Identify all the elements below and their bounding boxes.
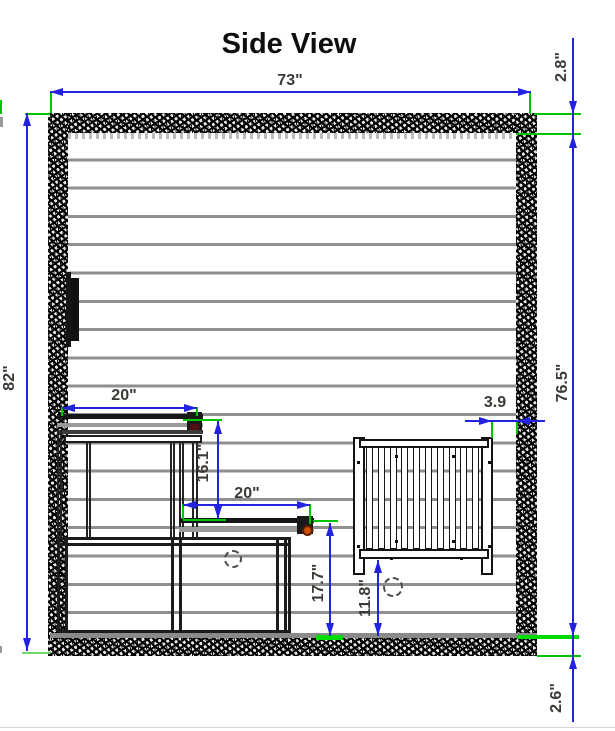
heater-slat xyxy=(366,447,373,549)
dimension-overall-height: 82" xyxy=(1,365,19,390)
dimension-interior-height: 76.5" xyxy=(554,364,572,403)
arrow-left-icon xyxy=(517,417,530,425)
heater-screw-dot xyxy=(390,557,393,560)
lower-bench-frame-post xyxy=(179,537,182,633)
dimension-upper-bench-depth: 20" xyxy=(111,387,136,405)
extension-line xyxy=(313,520,338,522)
upper-bench-leg xyxy=(86,442,91,537)
heater-slat xyxy=(401,447,408,549)
heater-screw-dot xyxy=(488,545,491,548)
heater-slat xyxy=(472,447,479,549)
page-divider xyxy=(0,727,615,728)
dimension-line xyxy=(62,407,197,409)
arrow-up-icon xyxy=(569,656,577,669)
heater-bottom-rail xyxy=(359,549,489,559)
arrow-right-icon xyxy=(184,404,197,412)
lower-bench-frame xyxy=(57,537,291,633)
arrow-left-icon xyxy=(50,88,63,96)
heater-screw-dot xyxy=(395,455,398,458)
lower-bench-top-underside xyxy=(179,527,314,532)
dimension-heater-floor-clearance: 11.8" xyxy=(357,579,375,617)
heater-screw-dot xyxy=(452,455,455,458)
arrow-left-icon xyxy=(183,501,196,509)
heater-slat xyxy=(413,447,420,549)
heater-slat xyxy=(390,447,397,549)
arrow-down-icon xyxy=(23,638,31,651)
cropped-drawing-fragment xyxy=(0,117,3,127)
upper-bench-top-edge xyxy=(57,414,203,419)
arrow-up-icon xyxy=(214,421,222,434)
cropped-drawing-fragment xyxy=(0,646,2,653)
dimension-lower-bench-depth: 20" xyxy=(234,485,259,503)
extension-line xyxy=(183,519,226,521)
arrow-up-icon xyxy=(23,113,31,126)
lower-bench-frame-post xyxy=(171,537,174,633)
dimension-line xyxy=(50,91,531,93)
door-hinge-plate xyxy=(71,278,79,341)
top-wall xyxy=(50,113,537,133)
heater-screw-dot xyxy=(357,461,360,464)
arrow-down-icon xyxy=(569,101,577,114)
heater-slat xyxy=(460,447,467,549)
arrow-up-icon xyxy=(326,523,334,536)
dimension-bench-vertical-gap: 16.1" xyxy=(195,444,213,483)
lower-bench-frame-rail xyxy=(57,543,291,546)
view-title: Side View xyxy=(222,28,357,61)
dimension-line xyxy=(183,504,310,506)
heater-screw-dot xyxy=(395,540,398,543)
dimension-heater-wall-gap: 3.9 xyxy=(484,394,506,412)
vent-mark-icon xyxy=(383,577,403,597)
arrow-down-icon xyxy=(326,623,334,636)
heater-slat xyxy=(378,447,385,549)
dimension-lower-bench-height: 17.7" xyxy=(310,564,328,603)
arrow-up-icon xyxy=(374,560,382,573)
lower-bench-end-accent xyxy=(302,525,313,536)
upper-bench-apron xyxy=(57,430,203,434)
floor-slab xyxy=(50,638,537,656)
dimension-line xyxy=(26,113,28,651)
arrow-down-icon xyxy=(569,623,577,636)
heater-slat xyxy=(449,447,456,549)
heater-slat xyxy=(437,447,444,549)
dimension-overall-width: 73" xyxy=(277,72,302,90)
upper-bench-top-underside xyxy=(57,423,203,427)
dimension-line xyxy=(329,523,331,636)
extension-line xyxy=(22,652,50,654)
upper-bench-leg xyxy=(57,430,62,537)
lower-bench-frame-post xyxy=(284,537,287,633)
right-wall xyxy=(516,113,537,656)
heater-screw-dot xyxy=(357,545,360,548)
heater-screw-dot xyxy=(460,557,463,560)
arrow-down-icon xyxy=(374,623,382,636)
dimension-top-wall-thickness: 2.8" xyxy=(553,52,571,82)
arrow-down-icon xyxy=(214,506,222,519)
heater-screw-dot xyxy=(452,540,455,543)
arrow-up-icon xyxy=(569,135,577,148)
arrow-right-icon xyxy=(518,88,531,96)
vent-mark-icon xyxy=(224,550,242,568)
cropped-extension-fragment xyxy=(0,100,2,114)
heater-screw-dot xyxy=(488,461,491,464)
dimension-floor-thickness: 2.6" xyxy=(548,683,566,713)
lower-bench-frame-post xyxy=(65,537,68,633)
dimension-line xyxy=(465,420,545,422)
arrow-right-icon xyxy=(479,417,492,425)
arrow-right-icon xyxy=(297,501,310,509)
arrow-left-icon xyxy=(62,404,75,412)
heater-slat xyxy=(425,447,432,549)
drawing-canvas: Side View xyxy=(0,0,615,731)
ceiling-panel-strip xyxy=(68,133,516,139)
lower-bench-frame-post xyxy=(276,537,279,633)
upper-bench-leg xyxy=(170,442,175,537)
